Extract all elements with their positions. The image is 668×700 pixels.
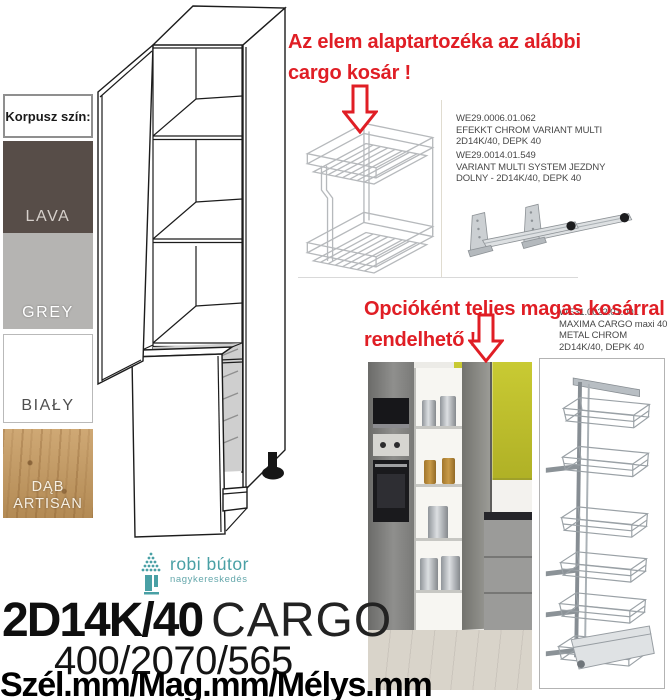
product-block-variant-multi: WE29.0006.01.062 EFEKKT CHROM VARIANT MU…	[456, 113, 602, 148]
swatch-lava-label: LAVA	[3, 208, 93, 226]
base-cabinet	[484, 520, 532, 630]
down-arrow-icon	[342, 84, 378, 134]
swatch-dab-artisan-label: DĄB ARTISAN	[3, 479, 93, 513]
dimensions-labels: Szél.mm/Mag.mm/Mélys.mm	[0, 666, 432, 700]
tree-icon	[138, 550, 164, 596]
cabinet-line-drawing	[95, 3, 295, 563]
product-block-system-jezdny: WE29.0014.01.549 VARIANT MULTI SYSTEM JE…	[456, 150, 605, 185]
note-basic-accessory: Az elem alaptartozéka az alábbi cargo ko…	[288, 27, 581, 89]
note-optional-basket: Opcióként teljes magas kosárral is rende…	[364, 294, 668, 356]
note-optional-line2: rendelhető !	[364, 325, 668, 356]
swatch-bialy: BIAŁY	[3, 334, 93, 423]
swatch-dab-artisan: DĄB ARTISAN	[3, 429, 93, 518]
open-pantry-interior	[414, 368, 462, 630]
product-desc: EFEKKT CHROM VARIANT MULTI	[456, 125, 602, 137]
down-arrow-icon	[468, 313, 504, 363]
product-code: WE29.0006.01.062	[456, 113, 602, 125]
brand-logo: robi bútor nagykereskedés	[138, 550, 249, 596]
note-basic-line1: Az elem alaptartozéka az alábbi	[288, 27, 581, 58]
kitchen-photo	[368, 362, 532, 690]
oven	[373, 460, 409, 522]
maxima-cargo-image	[539, 358, 665, 689]
product-desc: 2D14K/40, DEPK 40	[456, 136, 602, 148]
vertical-divider	[441, 100, 442, 278]
product-sheet: Korpusz szín: LAVA GREY BIAŁY DĄB ARTISA…	[0, 0, 668, 700]
note-optional-line1: Opcióként teljes magas kosárral is	[364, 294, 668, 325]
product-desc: DOLNY - 2D14K/40, DEPK 40	[456, 173, 605, 185]
microwave	[373, 398, 409, 428]
swatch-grey-label: GREY	[3, 304, 93, 322]
swatch-bialy-label: BIAŁY	[4, 397, 92, 415]
carcass-color-header: Korpusz szín:	[3, 94, 93, 138]
horizontal-divider	[298, 277, 578, 278]
product-desc: VARIANT MULTI SYSTEM JEZDNY	[456, 162, 605, 174]
note-basic-line2: cargo kosár !	[288, 58, 581, 89]
swatch-lava: LAVA	[3, 141, 93, 233]
product-code: WE29.0014.01.549	[456, 150, 605, 162]
runner-slides-drawing	[462, 196, 642, 262]
swatch-grey: GREY	[3, 233, 93, 329]
brand-subtitle: nagykereskedés	[170, 574, 249, 585]
brand-name: robi bútor	[170, 554, 249, 575]
